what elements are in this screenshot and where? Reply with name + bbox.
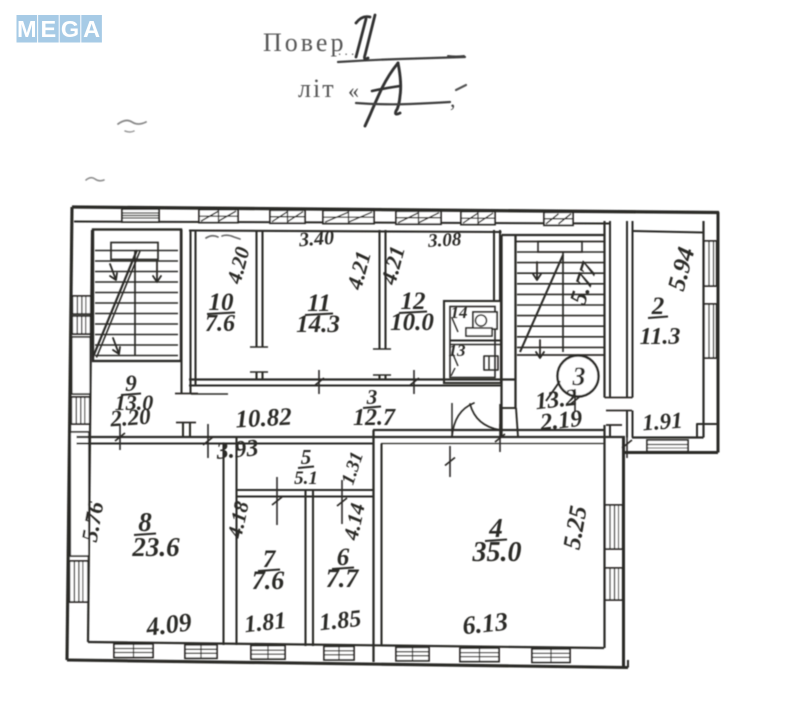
svg-text:3.93: 3.93 [214,435,259,465]
svg-text:7.6: 7.6 [252,566,285,595]
svg-text:7.6: 7.6 [205,311,235,337]
svg-text:5.1: 5.1 [294,468,318,489]
svg-text:14.3: 14.3 [296,311,340,338]
svg-text:11.3: 11.3 [640,324,681,350]
svg-text:2.20: 2.20 [109,404,152,432]
svg-text:10.0: 10.0 [390,309,434,336]
svg-text:7.7: 7.7 [326,564,360,593]
svg-text:6.13: 6.13 [461,607,509,641]
svg-text:35.0: 35.0 [472,537,522,568]
svg-text:«: « [348,78,359,103]
svg-text:10.82: 10.82 [235,404,293,434]
svg-text:14: 14 [451,303,468,322]
svg-text:G: G [61,16,79,42]
svg-text:E: E [41,16,57,42]
svg-text:3.08: 3.08 [427,229,463,252]
svg-text:M: M [17,16,37,42]
svg-text:12.7: 12.7 [353,405,396,431]
svg-text:. . .: . . . [338,43,354,58]
svg-text:13: 13 [449,341,467,360]
svg-text:3.40: 3.40 [297,227,334,251]
svg-text:1.91: 1.91 [642,408,684,436]
svg-text:A: A [83,16,100,42]
svg-text:Повер: Повер [263,28,346,57]
svg-text:літ: літ [298,74,336,103]
svg-text:23.6: 23.6 [131,532,180,562]
svg-text:,: , [450,87,456,112]
svg-text:1.85: 1.85 [318,606,362,636]
svg-text:4.09: 4.09 [144,607,194,641]
svg-text:5: 5 [301,445,312,469]
svg-text:2.19: 2.19 [538,406,583,436]
svg-text:1.81: 1.81 [243,608,287,638]
